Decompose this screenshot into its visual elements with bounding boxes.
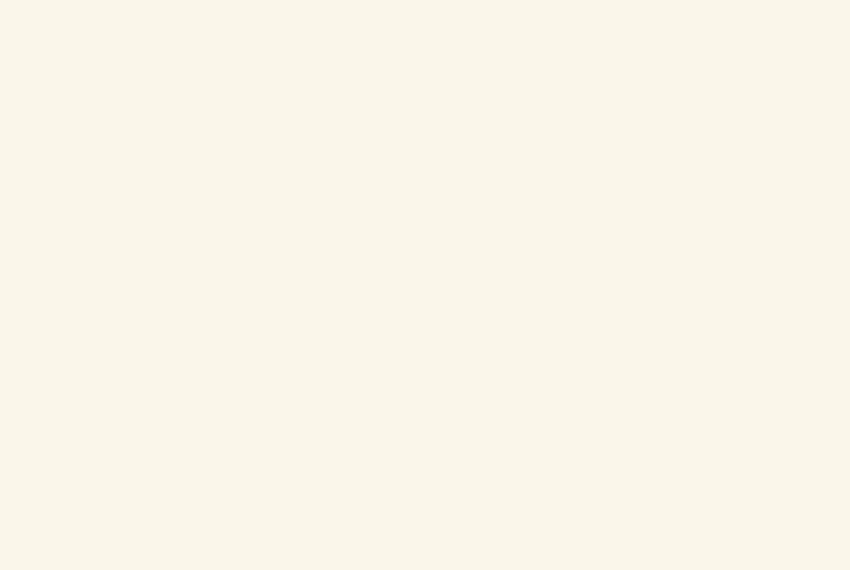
cadastral-map[interactable] <box>0 0 850 570</box>
cadastral-map-viewport[interactable] <box>0 0 850 570</box>
